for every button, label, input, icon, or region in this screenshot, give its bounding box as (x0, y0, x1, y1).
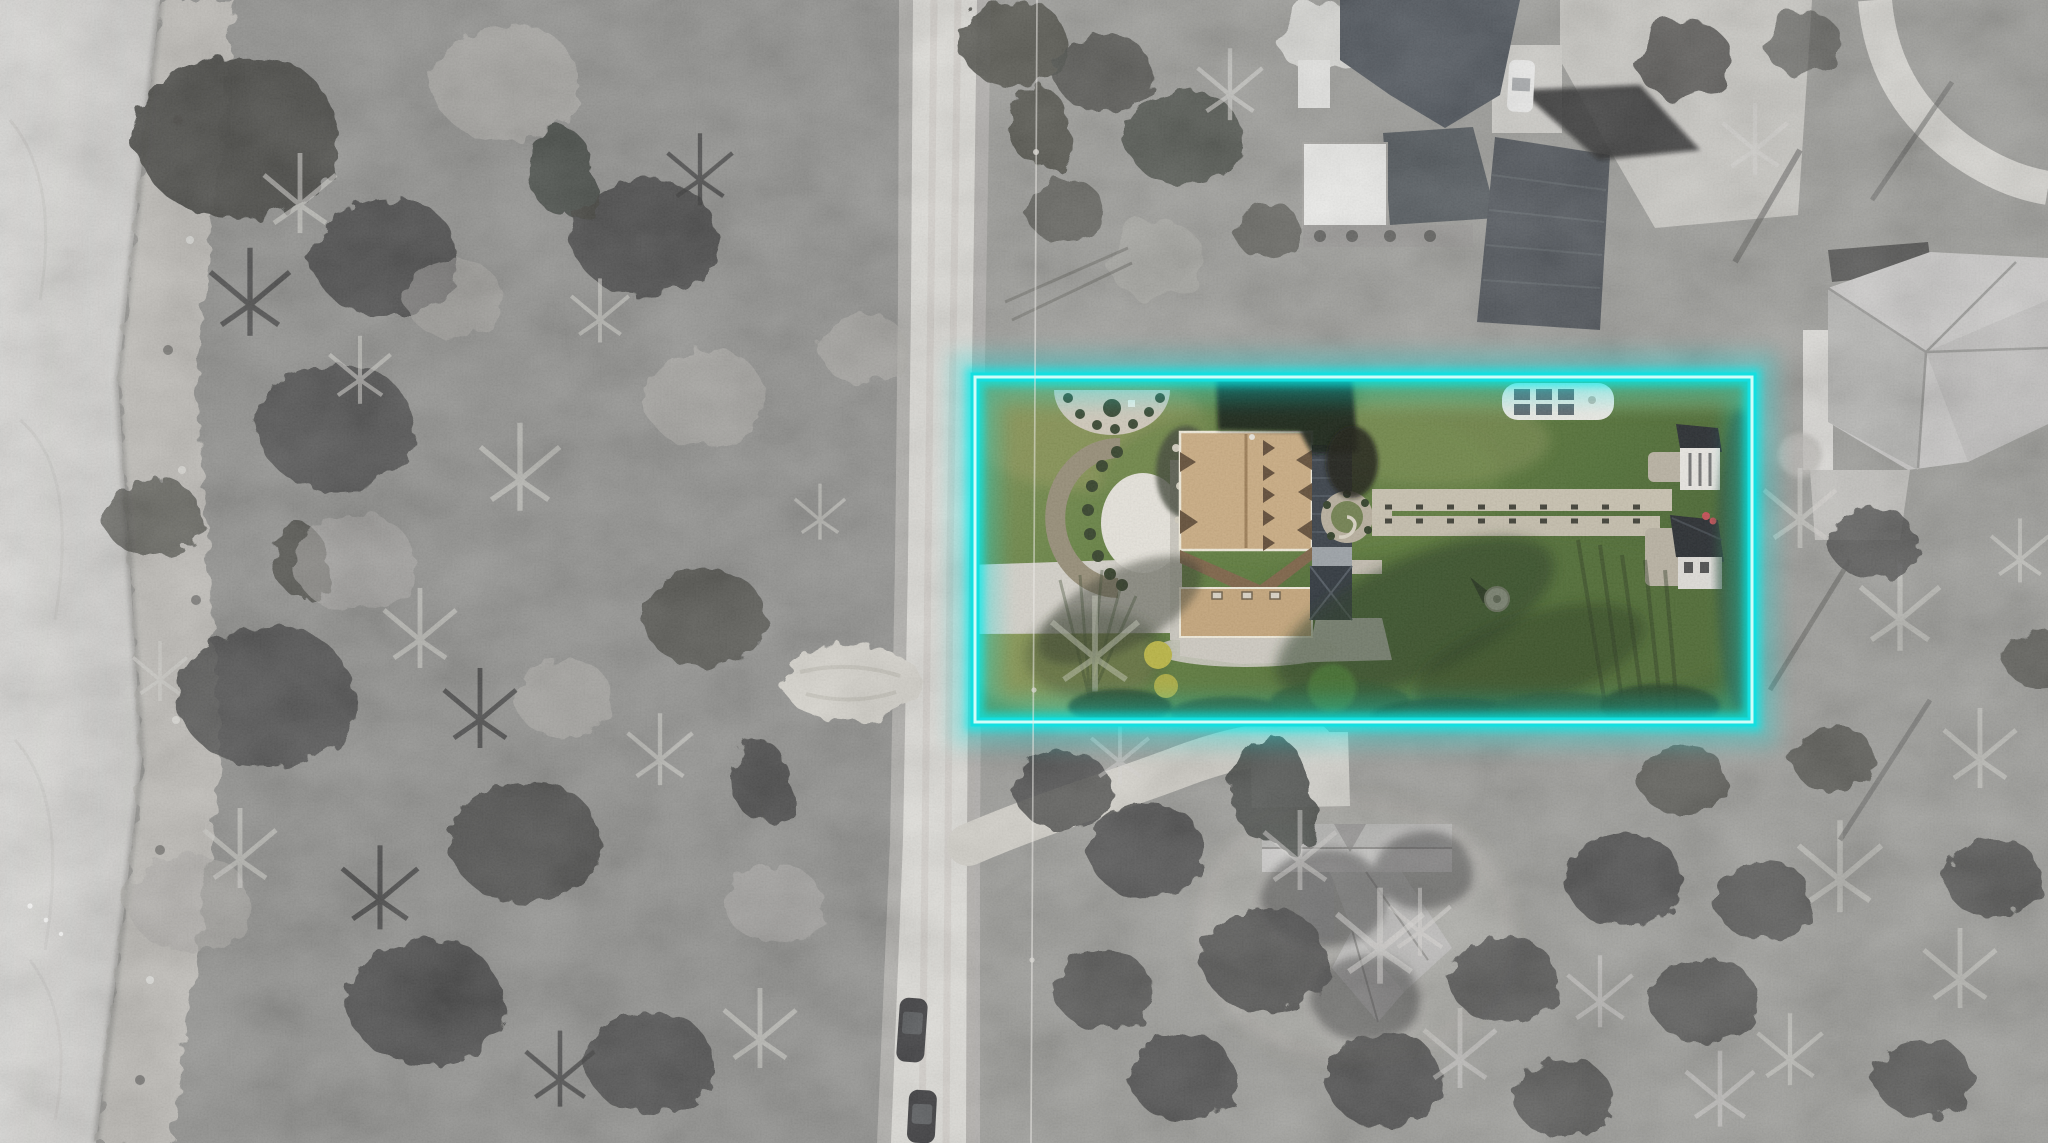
aerial-property-photo (0, 0, 2048, 1143)
aerial-photo-svg (0, 0, 2048, 1143)
highlighted-lot (965, 370, 1764, 740)
lot-grain (975, 377, 1752, 722)
